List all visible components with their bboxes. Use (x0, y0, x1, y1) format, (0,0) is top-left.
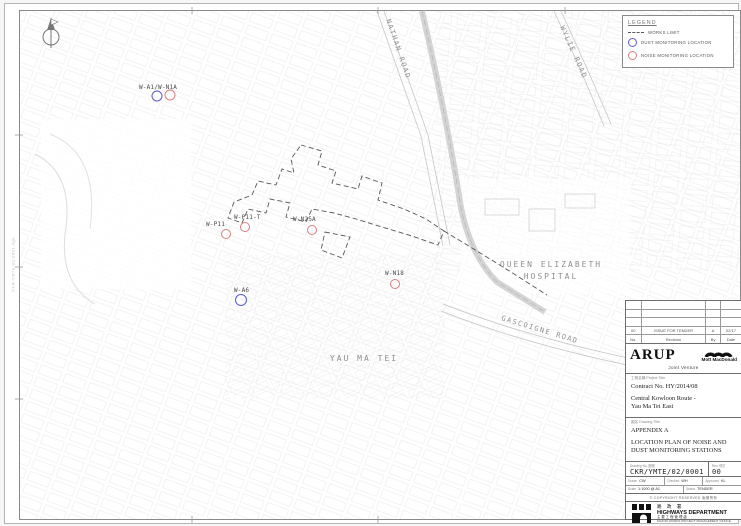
station-label: W-N18 (385, 270, 404, 277)
revision-number: 00 (712, 468, 738, 476)
station-label: W-A1/W-N1A (139, 84, 177, 91)
consultant-logos: ARUP Mott MacDonald Joint Venture (626, 344, 741, 374)
project-title-line1: Central Kowloon Route - (631, 395, 736, 404)
drawing-number: CKR/YMTE/02/0001 (630, 468, 704, 476)
contract-no: Contract No. HY/2014/08 (631, 383, 736, 392)
revision-table: 00 ISSUE FOR TENDER A 02/17 No. Revision… (626, 301, 741, 344)
revision-entry-row: 00 ISSUE FOR TENDER A 02/17 (626, 327, 741, 336)
mott-macdonald-logo: Mott MacDonald (702, 348, 737, 363)
revision-header-row: No. Revision By Date (626, 335, 741, 343)
revision-row-empty (626, 301, 741, 310)
status-value: TENDER (697, 487, 713, 491)
station-label: W-P11-T (234, 214, 261, 221)
highways-department-logo-icon (631, 504, 653, 524)
appendix-label: APPENDIX A (631, 427, 736, 436)
legend-works-limit: WORKS LIMIT (628, 30, 728, 35)
copyright-line: © COPYRIGHT RESERVED 版權所有 (626, 494, 741, 502)
revision-row-empty (626, 310, 741, 319)
highways-department-block: 路 政 署 HIGHWAYS DEPARTMENT 主要工程管理處 MAJOR … (626, 502, 741, 526)
arup-logo: ARUP (630, 347, 676, 364)
drawing-number-row: Drawing No. 圖號 CKR/YMTE/02/0001 Rev. 修訂 … (626, 462, 741, 477)
station-label: W-A6 (234, 287, 249, 294)
drawing-title-line1: LOCATION PLAN OF NOISE AND (631, 439, 736, 448)
joint-venture-label: Joint Venture (630, 365, 737, 370)
drawing-title-line2: DUST MONITORING STATIONS (631, 447, 736, 456)
legend-noise: NOISE MONITORING LOCATION (628, 51, 728, 60)
sheet-paper: CKR-YMTE-02-0001.dgn (4, 3, 739, 524)
place-label: YAU MA TEI (330, 354, 398, 363)
project-title-line2: Yau Ma Tei East (631, 403, 736, 412)
legend-title: LEGEND (628, 20, 728, 26)
dust-marker-icon (628, 38, 637, 47)
station-label: W-N25A (293, 216, 316, 223)
noise-marker-icon (628, 51, 637, 60)
mott-arcs-icon (704, 348, 734, 357)
revision-row-empty (626, 318, 741, 327)
legend-dust: DUST MONITORING LOCATION (628, 38, 728, 47)
signature-fields: DrawnCW CheckedWH ApprovedKL Scale1:1000… (626, 477, 741, 494)
legend-box: LEGEND WORKS LIMIT DUST MONITORING LOCAT… (622, 15, 734, 68)
place-label: QUEEN ELIZABETH (500, 260, 602, 269)
project-title-section: 工程名稱 Project Title Contract No. HY/2014/… (626, 374, 741, 418)
place-label: HOSPITAL (524, 272, 579, 281)
drawing-sheet-view: CKR-YMTE-02-0001.dgn (0, 0, 741, 526)
title-block: 00 ISSUE FOR TENDER A 02/17 No. Revision… (625, 300, 741, 520)
station-label: W-P11 (206, 221, 225, 228)
drawing-title-section: 圖名 Drawing Title APPENDIX A LOCATION PLA… (626, 418, 741, 462)
works-limit-line-icon (628, 32, 644, 33)
